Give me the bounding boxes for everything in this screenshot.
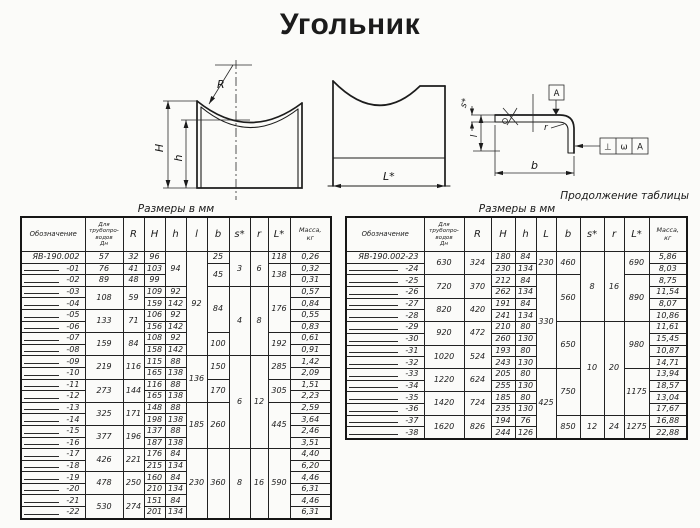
h-arrow-top xyxy=(184,120,189,128)
value-cell: 6,31 xyxy=(290,507,331,519)
value-cell: 426 xyxy=(85,449,123,472)
value-cell: 198 xyxy=(144,414,165,426)
value-cell: 134 xyxy=(515,310,536,322)
radius-arrow xyxy=(209,96,215,104)
value-cell: 210 xyxy=(144,483,165,495)
value-cell: 115 xyxy=(144,356,165,368)
value-cell: 1,51 xyxy=(290,379,331,391)
value-cell: 84 xyxy=(207,286,229,332)
value-cell: 134 xyxy=(165,507,186,519)
designation-cell: -08 xyxy=(21,344,85,356)
designation-cell: -26 xyxy=(346,287,424,299)
tolerance-frame: ⊥ ω А xyxy=(575,138,648,154)
value-cell: 84 xyxy=(515,275,536,287)
value-cell: 850 xyxy=(556,415,580,439)
column-header: Обозначение xyxy=(346,217,424,252)
value-cell: 130 xyxy=(515,357,536,369)
value-cell: 0,26 xyxy=(290,252,331,264)
value-cell: 89 xyxy=(85,275,123,287)
value-cell: 142 xyxy=(165,298,186,310)
s-arrow-bottom xyxy=(470,122,474,129)
value-cell: 11,54 xyxy=(649,287,687,299)
value-cell: 138 xyxy=(165,391,186,403)
left-table-caption: Размеры в мм xyxy=(20,203,332,215)
value-cell: 8 xyxy=(229,449,250,519)
value-cell: 130 xyxy=(515,380,536,392)
table-row: -17426221176842303608165904,40 xyxy=(21,449,331,461)
value-cell: 0,61 xyxy=(290,333,331,345)
designation-cell: -02 xyxy=(21,275,85,287)
column-header: Масса, кг xyxy=(649,217,687,252)
value-cell: 8 xyxy=(250,286,268,356)
value-cell: 285 xyxy=(268,356,290,379)
page-title: Угольник xyxy=(0,8,700,42)
column-header: L xyxy=(536,217,556,252)
value-cell: 0,57 xyxy=(290,286,331,298)
side-view-drawing: L* xyxy=(328,81,450,188)
column-header: R xyxy=(123,217,144,252)
value-cell: 720 xyxy=(424,275,464,298)
h-arrow-bottom xyxy=(184,180,189,188)
fcf-value: ω xyxy=(620,143,627,153)
value-cell: 624 xyxy=(464,368,491,391)
front-view-drawing: R H h xyxy=(153,60,302,200)
value-cell: 76 xyxy=(515,415,536,427)
table-row: -33122062420580425750117513,94 xyxy=(346,368,687,380)
designation-cell: -21 xyxy=(21,495,85,507)
value-cell: 260 xyxy=(207,402,229,448)
value-cell: 1,42 xyxy=(290,356,331,368)
value-cell: 194 xyxy=(491,415,515,427)
dimensions-table-left: ОбозначениеДля трубопро- водов ДнRHhlbs*… xyxy=(20,216,332,520)
value-cell: 324 xyxy=(464,252,491,275)
designation-cell: -06 xyxy=(21,321,85,333)
technical-drawings: R H h L* s* xyxy=(0,48,700,210)
value-cell: 2,46 xyxy=(290,425,331,437)
designation-cell: -38 xyxy=(346,427,424,439)
fcf-symbol: ⊥ xyxy=(604,143,611,153)
value-cell: 12 xyxy=(250,356,268,449)
value-cell: 305 xyxy=(268,379,290,402)
value-cell: 15,45 xyxy=(649,333,687,345)
H-arrow-bottom xyxy=(166,180,171,188)
value-cell: 460 xyxy=(556,252,580,275)
L-arrow-right xyxy=(437,184,445,188)
table-row: -11273144116881703051,51 xyxy=(21,379,331,391)
column-header: h xyxy=(515,217,536,252)
value-cell: 560 xyxy=(556,275,580,322)
designation-cell: ЯВ-190.002-23 xyxy=(346,252,424,264)
value-cell: 4 xyxy=(229,286,250,356)
designation-cell: ЯВ-190.002 xyxy=(21,252,85,264)
value-cell: 8 xyxy=(580,252,604,322)
value-cell: 920 xyxy=(424,322,464,345)
designation-cell: -11 xyxy=(21,379,85,391)
datum-flag: А xyxy=(549,85,564,115)
value-cell: 377 xyxy=(85,425,123,448)
value-cell: 273 xyxy=(85,379,123,402)
value-cell: 137 xyxy=(144,425,165,437)
extension-lines xyxy=(471,115,574,176)
value-cell: 425 xyxy=(536,368,556,439)
value-cell: 108 xyxy=(85,286,123,309)
value-cell: 13,04 xyxy=(649,392,687,404)
value-cell: 10,87 xyxy=(649,345,687,357)
value-cell: 12 xyxy=(580,415,604,439)
value-cell: 4,46 xyxy=(290,472,331,484)
value-cell: 138 xyxy=(165,437,186,449)
extension-lines xyxy=(163,101,250,188)
designation-cell: -34 xyxy=(346,380,424,392)
value-cell: 260 xyxy=(491,333,515,345)
saddle-arc xyxy=(197,101,302,123)
designation-cell: -31 xyxy=(346,345,424,357)
column-header: H xyxy=(491,217,515,252)
value-cell: 524 xyxy=(464,345,491,368)
designation-cell: -13 xyxy=(21,402,85,414)
value-cell: 150 xyxy=(207,356,229,379)
label-height-outer: H xyxy=(153,144,166,152)
value-cell: 116 xyxy=(123,356,144,379)
designation-cell: -28 xyxy=(346,310,424,322)
value-cell: 235 xyxy=(491,403,515,415)
designation-cell: -01 xyxy=(21,263,85,275)
value-cell: 84 xyxy=(165,472,186,484)
designation-cell: -17 xyxy=(21,449,85,461)
designation-cell: -12 xyxy=(21,391,85,403)
fcf-arrow xyxy=(575,144,583,148)
value-cell: 16 xyxy=(604,252,624,322)
label-thickness: s* xyxy=(459,97,472,110)
value-cell: 171 xyxy=(123,402,144,425)
designation-cell: -16 xyxy=(21,437,85,449)
value-cell: 84 xyxy=(515,252,536,264)
l-arrow-bottom xyxy=(479,143,484,151)
value-cell: 48 xyxy=(123,275,144,287)
value-cell: 156 xyxy=(144,321,165,333)
value-cell: 185 xyxy=(491,392,515,404)
value-cell: 826 xyxy=(464,415,491,439)
inner-profile xyxy=(495,115,574,153)
value-cell: 18,57 xyxy=(649,380,687,392)
value-cell: 92 xyxy=(165,333,186,345)
value-cell: 4,46 xyxy=(290,495,331,507)
value-cell: 134 xyxy=(165,460,186,472)
value-cell: 445 xyxy=(268,402,290,448)
table-row: -2992047221080650102098011,61 xyxy=(346,322,687,334)
value-cell: 0,84 xyxy=(290,298,331,310)
datum-triangle xyxy=(552,109,559,115)
value-cell: 176 xyxy=(268,286,290,332)
document-page: Угольник R H h xyxy=(0,0,700,528)
value-cell: 92 xyxy=(186,252,207,356)
value-cell: 142 xyxy=(165,321,186,333)
value-cell: 650 xyxy=(556,322,580,369)
value-cell: 118 xyxy=(268,252,290,264)
table-row: -25720370212843305608908,75 xyxy=(346,275,687,287)
value-cell: 17,67 xyxy=(649,403,687,415)
designation-cell: -22 xyxy=(21,507,85,519)
value-cell: 0,55 xyxy=(290,309,331,321)
r-leader xyxy=(551,124,564,128)
value-cell: 151 xyxy=(144,495,165,507)
value-cell: 160 xyxy=(144,472,165,484)
value-cell: 24 xyxy=(604,415,624,439)
value-cell: 185 xyxy=(186,402,207,448)
value-cell: 130 xyxy=(515,403,536,415)
value-cell: 187 xyxy=(144,437,165,449)
column-header: Для трубопро- водов Дн xyxy=(424,217,464,252)
designation-cell: -29 xyxy=(346,322,424,334)
value-cell: 180 xyxy=(491,252,515,264)
value-cell: 820 xyxy=(424,298,464,321)
b-arrow-left xyxy=(495,171,503,175)
designation-cell: -27 xyxy=(346,298,424,310)
column-header: Обозначение xyxy=(21,217,85,252)
value-cell: 205 xyxy=(491,368,515,380)
value-cell: 41 xyxy=(123,263,144,275)
value-cell: 192 xyxy=(268,333,290,356)
value-cell: 16,88 xyxy=(649,415,687,427)
value-cell: 144 xyxy=(123,379,144,402)
value-cell: 170 xyxy=(207,379,229,402)
value-cell: 201 xyxy=(144,507,165,519)
value-cell: 193 xyxy=(491,345,515,357)
value-cell: 80 xyxy=(515,345,536,357)
L-arrow-left xyxy=(333,184,341,188)
value-cell: 3,51 xyxy=(290,437,331,449)
value-cell: 134 xyxy=(515,263,536,275)
dimensions-table-right: ОбозначениеДля трубопро- водов ДнRHhLbs*… xyxy=(345,216,688,440)
value-cell: 14,71 xyxy=(649,357,687,369)
value-cell: 3 xyxy=(229,252,250,287)
designation-cell: -25 xyxy=(346,275,424,287)
datum-label: А xyxy=(554,89,560,99)
value-cell: 106 xyxy=(144,309,165,321)
column-header: h xyxy=(165,217,186,252)
value-cell: 1175 xyxy=(624,368,649,415)
value-cell: 478 xyxy=(85,472,123,495)
label-width: b xyxy=(531,159,538,172)
value-cell: 96 xyxy=(144,252,165,264)
l-arrow-top xyxy=(479,115,484,123)
value-cell: 221 xyxy=(123,449,144,472)
fcf-datum: А xyxy=(637,143,643,153)
column-header: b xyxy=(207,217,229,252)
value-cell: 10 xyxy=(580,322,604,416)
designation-cell: -07 xyxy=(21,333,85,345)
value-cell: 80 xyxy=(515,368,536,380)
value-cell: 84 xyxy=(165,449,186,461)
value-cell: 22,88 xyxy=(649,427,687,439)
value-cell: 2,09 xyxy=(290,367,331,379)
value-cell: 45 xyxy=(207,263,229,286)
designation-cell: -30 xyxy=(346,333,424,345)
value-cell: 136 xyxy=(186,356,207,402)
value-cell: 138 xyxy=(165,367,186,379)
value-cell: 84 xyxy=(165,495,186,507)
table-row: -13325171148881852604452,59 xyxy=(21,402,331,414)
value-cell: 330 xyxy=(536,275,556,369)
continuation-note: Продолжение таблицы xyxy=(345,190,689,202)
column-header: r xyxy=(250,217,268,252)
value-cell: 133 xyxy=(85,309,123,332)
designation-cell: -04 xyxy=(21,298,85,310)
designation-cell: -10 xyxy=(21,367,85,379)
value-cell: 142 xyxy=(165,344,186,356)
value-cell: 6 xyxy=(250,252,268,287)
value-cell: 109 xyxy=(144,286,165,298)
table-row: -371620826194768501224127516,88 xyxy=(346,415,687,427)
value-cell: 219 xyxy=(85,356,123,379)
value-cell: 4,40 xyxy=(290,449,331,461)
value-cell: 196 xyxy=(123,425,144,448)
table-row: -09219116115881361506122851,42 xyxy=(21,356,331,368)
value-cell: 80 xyxy=(515,392,536,404)
s-arrow-top xyxy=(470,109,474,116)
left-table-section: Размеры в мм ОбозначениеДля трубопро- во… xyxy=(20,203,332,520)
value-cell: 690 xyxy=(624,252,649,275)
value-cell: 890 xyxy=(624,275,649,322)
value-cell: 99 xyxy=(144,275,165,287)
value-cell: 630 xyxy=(424,252,464,275)
designation-cell: -15 xyxy=(21,425,85,437)
column-header: Масса, кг xyxy=(290,217,331,252)
label-leg: l xyxy=(470,134,480,137)
value-cell: 243 xyxy=(491,357,515,369)
value-cell: 71 xyxy=(123,309,144,332)
value-cell: 16 xyxy=(250,449,268,519)
value-cell: 92 xyxy=(165,309,186,321)
column-header: L* xyxy=(268,217,290,252)
column-header: r xyxy=(604,217,624,252)
value-cell: 8,75 xyxy=(649,275,687,287)
value-cell: 262 xyxy=(491,287,515,299)
column-header: s* xyxy=(580,217,604,252)
value-cell: 176 xyxy=(144,449,165,461)
table-row: -03108591099284481760,57 xyxy=(21,286,331,298)
designation-cell: -14 xyxy=(21,414,85,426)
designation-cell: -36 xyxy=(346,403,424,415)
designation-cell: -32 xyxy=(346,357,424,369)
value-cell: 750 xyxy=(556,368,580,415)
value-cell: 241 xyxy=(491,310,515,322)
column-header: H xyxy=(144,217,165,252)
value-cell: 2,59 xyxy=(290,402,331,414)
value-cell: 530 xyxy=(85,495,123,519)
column-header: Для трубопро- водов Дн xyxy=(85,217,123,252)
table-row: -0715984108921001920,61 xyxy=(21,333,331,345)
label-radius: R xyxy=(217,78,225,91)
value-cell: 274 xyxy=(123,495,144,519)
value-cell: 116 xyxy=(144,379,165,391)
value-cell: 3,64 xyxy=(290,414,331,426)
column-header: b xyxy=(556,217,580,252)
value-cell: 1275 xyxy=(624,415,649,439)
column-header: L* xyxy=(624,217,649,252)
value-cell: 210 xyxy=(491,322,515,334)
value-cell: 100 xyxy=(207,333,229,356)
designation-cell: -20 xyxy=(21,483,85,495)
value-cell: 472 xyxy=(464,322,491,345)
value-cell: 590 xyxy=(268,449,290,519)
column-header: s* xyxy=(229,217,250,252)
value-cell: 1220 xyxy=(424,368,464,391)
value-cell: 1020 xyxy=(424,345,464,368)
right-table-section: Продолжение таблицы Размеры в мм Обознач… xyxy=(345,190,689,440)
saddle-arc-inner xyxy=(201,107,298,128)
value-cell: 230 xyxy=(186,449,207,519)
value-cell: 212 xyxy=(491,275,515,287)
value-cell: 191 xyxy=(491,298,515,310)
value-cell: 8,07 xyxy=(649,298,687,310)
value-cell: 0,32 xyxy=(290,263,331,275)
outer-profile xyxy=(495,115,574,153)
designation-cell: -33 xyxy=(346,368,424,380)
value-cell: 159 xyxy=(85,333,123,356)
value-cell: 1620 xyxy=(424,415,464,439)
value-cell: 6,31 xyxy=(290,483,331,495)
label-length: L* xyxy=(383,170,395,183)
value-cell: 255 xyxy=(491,380,515,392)
value-cell: 6 xyxy=(229,356,250,449)
table-row: ЯВ-190.002-23630324180842304608166905,86 xyxy=(346,252,687,264)
value-cell: 80 xyxy=(515,322,536,334)
value-cell: 980 xyxy=(624,322,649,369)
value-cell: 370 xyxy=(464,275,491,298)
value-cell: 103 xyxy=(144,263,165,275)
designation-cell: -37 xyxy=(346,415,424,427)
value-cell: 138 xyxy=(165,414,186,426)
value-cell: 8,03 xyxy=(649,263,687,275)
designation-cell: -05 xyxy=(21,309,85,321)
b-arrow-right xyxy=(566,171,574,175)
value-cell: 76 xyxy=(85,263,123,275)
header-row: ОбозначениеДля трубопро- водов ДнRHhlbs*… xyxy=(21,217,331,252)
value-cell: 0,31 xyxy=(290,275,331,287)
value-cell: 420 xyxy=(464,298,491,321)
value-cell: 20 xyxy=(604,322,624,416)
designation-cell: -19 xyxy=(21,472,85,484)
value-cell: 108 xyxy=(144,333,165,345)
value-cell: 215 xyxy=(144,460,165,472)
value-cell: 32 xyxy=(123,252,144,264)
designation-cell: -03 xyxy=(21,286,85,298)
value-cell: 230 xyxy=(536,252,556,275)
designation-cell: -18 xyxy=(21,460,85,472)
value-cell: 94 xyxy=(165,252,186,287)
value-cell: 1420 xyxy=(424,392,464,415)
H-arrow-top xyxy=(166,101,171,109)
table-row: ЯВ-190.002573296949225361180,26 xyxy=(21,252,331,264)
column-header: R xyxy=(464,217,491,252)
header-row: ОбозначениеДля трубопро- водов ДнRHhLbs*… xyxy=(346,217,687,252)
value-cell: 165 xyxy=(144,367,165,379)
designation-cell: -35 xyxy=(346,392,424,404)
value-cell: 244 xyxy=(491,427,515,439)
value-cell: 165 xyxy=(144,391,165,403)
value-cell: 92 xyxy=(165,286,186,298)
value-cell: 2,23 xyxy=(290,391,331,403)
value-cell: 325 xyxy=(85,402,123,425)
value-cell: 13,94 xyxy=(649,368,687,380)
value-cell: 250 xyxy=(123,472,144,495)
value-cell: 88 xyxy=(165,356,186,368)
value-cell: 84 xyxy=(515,298,536,310)
value-cell: 25 xyxy=(207,252,229,264)
value-cell: 0,83 xyxy=(290,321,331,333)
value-cell: 360 xyxy=(207,449,229,519)
